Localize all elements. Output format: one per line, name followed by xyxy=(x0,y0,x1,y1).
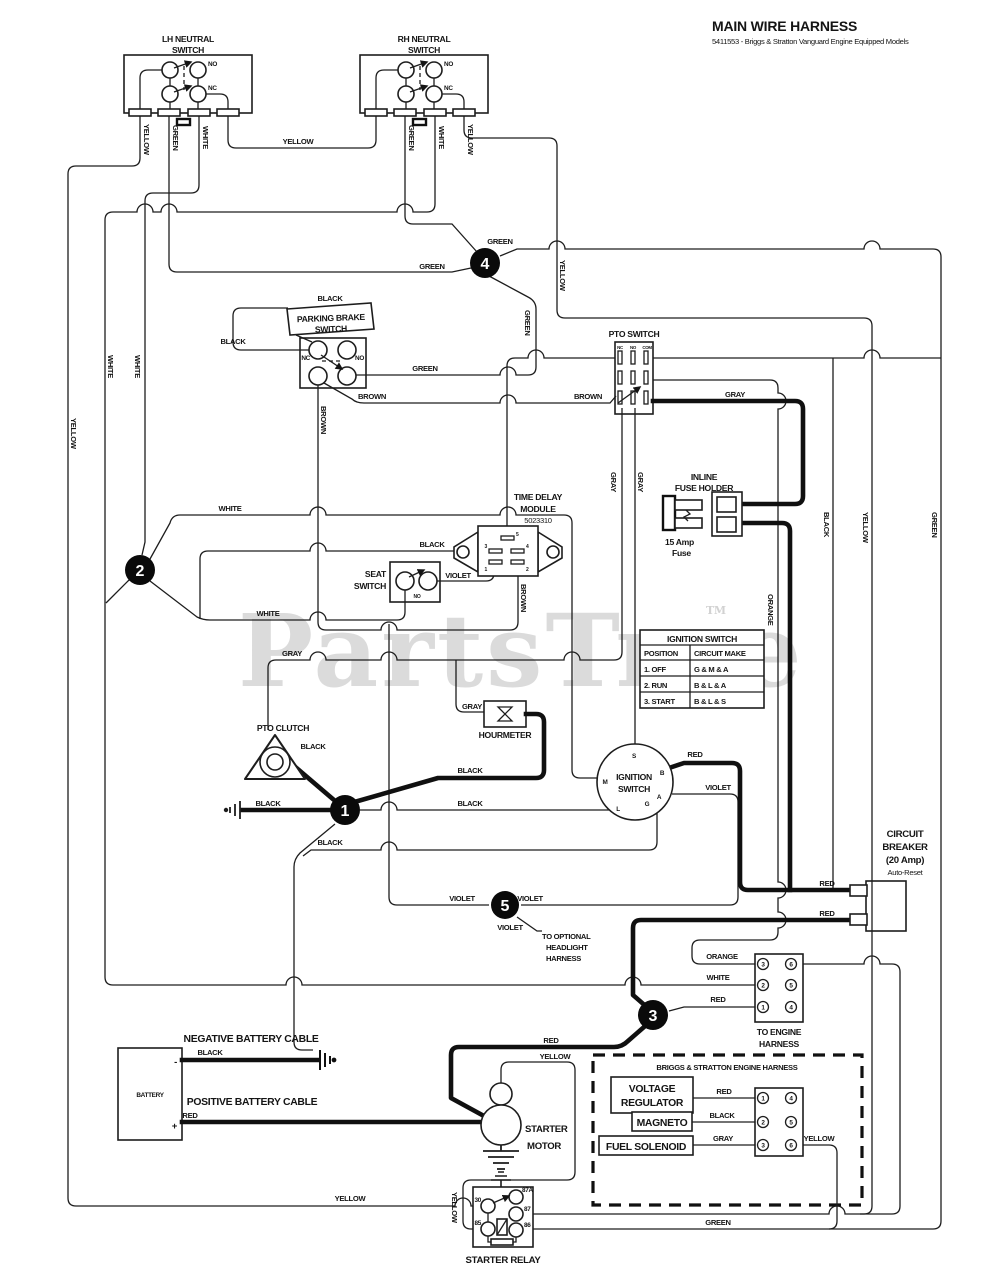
wire-label-green: GREEN xyxy=(407,125,416,151)
wire-label-green: GREEN xyxy=(705,1218,731,1227)
seat-switch-title: SEAT xyxy=(365,569,387,579)
wire-label-yellow: YELLOW xyxy=(540,1052,572,1061)
headlight-harness-label1: TO OPTIONAL xyxy=(542,932,591,941)
wire-black-ground xyxy=(294,824,335,1050)
junction-marker-5: 5 xyxy=(491,891,519,919)
wire-label-brown: BROWN xyxy=(519,584,528,612)
wire-label-brown: BROWN xyxy=(319,406,328,434)
wire-green-lh xyxy=(169,116,471,272)
starter-motor-label1: STARTER xyxy=(525,1124,568,1135)
clutch-ground-icon xyxy=(225,801,240,819)
relay-87a: 87A xyxy=(522,1187,534,1194)
time-delay-module: 5 3 4 1 2 xyxy=(454,526,562,576)
table-row-make: B & L & A xyxy=(694,681,727,690)
wire-label-red: RED xyxy=(710,995,726,1004)
junction-marker-3: 3 xyxy=(638,1000,668,1030)
wire-label-black: BLACK xyxy=(197,1048,223,1057)
parking-brake-title2: SWITCH xyxy=(315,323,348,334)
rh-neutral-switch-title2: SWITCH xyxy=(408,45,440,55)
wire-label-yellow: YELLOW xyxy=(466,124,475,156)
fuse-holder-title: INLINE xyxy=(691,472,718,482)
wire-label-red: RED xyxy=(819,909,835,918)
wire-label-black: BLACK xyxy=(822,512,831,538)
brake-no-label: NO xyxy=(355,355,364,362)
wire-label-gray: GRAY xyxy=(609,472,618,492)
pto-com-label: COM xyxy=(642,345,652,350)
relay-30: 30 xyxy=(474,1197,481,1204)
ignition-terminal-g: G xyxy=(645,801,650,808)
engine-harness-label1: TO ENGINE xyxy=(757,1027,802,1037)
wire-label-white: WHITE xyxy=(257,609,280,618)
wire-white-lh xyxy=(142,116,199,555)
relay-85: 85 xyxy=(474,1220,481,1227)
wire-label-black: BLACK xyxy=(419,540,445,549)
starter-relay-box xyxy=(473,1187,533,1247)
battery-neg-terminal: - xyxy=(174,1057,177,1068)
fuel-solenoid-label: FUEL SOLENOID xyxy=(606,1142,687,1153)
wire-label-brown: BROWN xyxy=(358,392,386,401)
fuse-label: Fuse xyxy=(672,548,691,558)
svg-text:2: 2 xyxy=(136,563,145,580)
headlight-harness-label2: HEADLIGHT xyxy=(546,943,588,952)
voltage-regulator-label2: REGULATOR xyxy=(621,1098,684,1109)
wire-label-red: RED xyxy=(543,1036,559,1045)
wire-red-ignition-b-breaker xyxy=(666,763,850,890)
rh-no-label: NO xyxy=(444,61,453,68)
table-row-position: 2. RUN xyxy=(644,681,667,690)
ignition-table-col2: CIRCUIT MAKE xyxy=(694,649,746,658)
wire-label-red: RED xyxy=(182,1111,198,1120)
table-row-make: B & L & S xyxy=(694,697,726,706)
wire-pto-right xyxy=(653,350,941,358)
wire-label-white: WHITE xyxy=(201,126,210,149)
wire-label-yellow: YELLOW xyxy=(861,512,870,544)
fuse-holder-title2: FUSE HOLDER xyxy=(675,483,734,493)
wire-engine-pin6 xyxy=(803,956,900,1214)
page-subtitle: 5411553 - Briggs & Stratton Vanguard Eng… xyxy=(712,37,909,46)
ignition-table-col1: POSITION xyxy=(644,649,678,658)
wire-label-violet: VIOLET xyxy=(705,783,731,792)
wire-label-yellow: YELLOW xyxy=(335,1194,367,1203)
wire-label-black: BLACK xyxy=(709,1111,735,1120)
ignition-switch: S M B A L G IGNITION SWITCH xyxy=(597,744,673,820)
lh-nc-label: NC xyxy=(208,85,217,92)
wire-label-white: WHITE xyxy=(133,355,142,378)
table-row-make: G & M & A xyxy=(694,665,729,674)
page-title: MAIN WIRE HARNESS xyxy=(712,18,857,34)
wire-label-black: BLACK xyxy=(317,838,343,847)
wire-label-white: WHITE xyxy=(219,504,242,513)
wire-label-black: BLACK xyxy=(317,294,343,303)
svg-text:3: 3 xyxy=(649,1008,658,1025)
circuit-breaker-reset: Auto-Reset xyxy=(888,868,924,877)
wire-label-gray: GRAY xyxy=(636,472,645,492)
wire-label-green: GREEN xyxy=(487,237,513,246)
lh-no-label: NO xyxy=(208,61,217,68)
svg-text:4: 4 xyxy=(481,256,490,273)
pto-switch-title: PTO SWITCH xyxy=(609,329,660,339)
wire-label-black: BLACK xyxy=(220,337,246,346)
wire-white-stub xyxy=(106,580,129,603)
wire-green-right-trunk xyxy=(500,241,941,1229)
title-block: MAIN WIRE HARNESS 5411553 - Briggs & Str… xyxy=(712,18,909,46)
positive-cable-label: POSITIVE BATTERY CABLE xyxy=(187,1097,318,1108)
wiring-diagram: PartsTree TM MAIN WIRE HARNESS 5411553 -… xyxy=(0,0,989,1280)
wire-label-white: WHITE xyxy=(106,355,115,378)
wire-label-gray: GRAY xyxy=(725,390,745,399)
ignition-terminal-a: A xyxy=(657,794,662,801)
circuit-breaker-title: CIRCUIT xyxy=(887,829,924,840)
wire-label-green: GREEN xyxy=(930,512,939,538)
battery-pos-terminal: + xyxy=(172,1121,178,1132)
starter-relay-title: STARTER RELAY xyxy=(466,1255,542,1266)
wiring-diagram-page: PartsTree TM MAIN WIRE HARNESS 5411553 -… xyxy=(0,0,989,1280)
wire-label-green: GREEN xyxy=(419,262,445,271)
wire-black-ignition-l xyxy=(360,802,609,810)
ignition-table-header: IGNITION SWITCH xyxy=(667,634,737,644)
wire-label-yellow: YELLOW xyxy=(283,137,315,146)
engine-harness-label2: HARNESS xyxy=(759,1039,799,1049)
relay-87: 87 xyxy=(524,1206,531,1213)
wire-label-violet: VIOLET xyxy=(449,894,475,903)
wire-label-green: GREEN xyxy=(171,125,180,151)
wire-label-gray: GRAY xyxy=(713,1134,733,1143)
headlight-harness-label3: HARNESS xyxy=(546,954,581,963)
watermark-tm: TM xyxy=(706,604,726,617)
circuit-breaker-title2: BREAKER xyxy=(882,842,928,853)
wire-label-violet: VIOLET xyxy=(497,923,523,932)
wire-label-red: RED xyxy=(687,750,703,759)
wire-label-black: BLACK xyxy=(457,799,483,808)
lh-neutral-switch-title: LH NEUTRAL xyxy=(162,34,214,44)
battery-label: BATTERY xyxy=(136,1092,164,1099)
ignition-terminal-l: L xyxy=(616,806,620,813)
starter-motor-label2: MOTOR xyxy=(527,1141,561,1152)
lh-neutral-switch-title2: SWITCH xyxy=(172,45,204,55)
wire-label-yellow: YELLOW xyxy=(804,1134,836,1143)
negative-cable-label: NEGATIVE BATTERY CABLE xyxy=(183,1034,318,1045)
magneto-label: MAGNETO xyxy=(637,1118,688,1129)
wire-label-orange: ORANGE xyxy=(766,594,775,626)
seat-switch-title2: SWITCH xyxy=(354,581,386,591)
pto-clutch xyxy=(245,735,305,779)
battery-ground-icon xyxy=(320,1051,335,1069)
inline-fuse-holder xyxy=(663,492,742,536)
pto-switch-box xyxy=(615,342,653,414)
wire-label-red: RED xyxy=(819,879,835,888)
wire-label-yellow: YELLOW xyxy=(450,1192,459,1224)
rh-neutral-switch-title: RH NEUTRAL xyxy=(398,34,451,44)
rh-nc-label: NC xyxy=(444,85,453,92)
wire-label-green: GREEN xyxy=(523,310,532,336)
fuse-amp-label: 15 Amp xyxy=(665,537,694,547)
wire-label-white: WHITE xyxy=(437,126,446,149)
ignition-terminal-b: B xyxy=(660,770,665,777)
time-delay-title: TIME DELAY xyxy=(514,492,563,502)
wire-label-orange: ORANGE xyxy=(706,952,738,961)
pto-clutch-title: PTO CLUTCH xyxy=(257,723,309,733)
time-delay-part: 5023310 xyxy=(524,516,552,525)
time-delay-title2: MODULE xyxy=(520,504,556,514)
bs-harness-title: BRIGGS & STRATTON ENGINE HARNESS xyxy=(656,1063,797,1072)
wire-label-gray: GRAY xyxy=(282,649,302,658)
wire-label-violet: VIOLET xyxy=(517,894,543,903)
svg-text:5: 5 xyxy=(501,898,510,915)
wire-label-green: GREEN xyxy=(412,364,438,373)
wire-label-black: BLACK xyxy=(255,799,281,808)
junction-marker-1: 1 xyxy=(330,795,360,825)
wire-label-gray: GRAY xyxy=(462,702,482,711)
wire-label-black: BLACK xyxy=(457,766,483,775)
starter-motor xyxy=(481,1083,521,1169)
junction-marker-4: 4 xyxy=(470,248,500,278)
junction-marker-2: 2 xyxy=(125,555,155,585)
wire-red-engine-pin1 xyxy=(669,1007,755,1011)
wire-label-yellow: YELLOW xyxy=(69,418,78,450)
svg-text:1: 1 xyxy=(341,803,350,820)
wire-label-brown: BROWN xyxy=(574,392,602,401)
wire-label-violet: VIOLET xyxy=(445,571,471,580)
circuit-breaker xyxy=(850,885,867,925)
wire-label-white: WHITE xyxy=(707,973,730,982)
table-row-position: 1. OFF xyxy=(644,665,666,674)
ignition-switch-label2: SWITCH xyxy=(618,784,650,794)
wire-label-yellow: YELLOW xyxy=(558,260,567,292)
voltage-regulator-label1: VOLTAGE xyxy=(629,1084,676,1095)
table-row-position: 3. START xyxy=(644,697,675,706)
ignition-switch-label1: IGNITION xyxy=(616,772,652,782)
relay-86: 86 xyxy=(524,1222,531,1229)
wire-label-red: RED xyxy=(716,1087,732,1096)
pto-no-label: NO xyxy=(630,345,637,350)
wire-label-black: BLACK xyxy=(300,742,326,751)
circuit-breaker-amp: (20 Amp) xyxy=(886,855,924,866)
wire-label-yellow: YELLOW xyxy=(142,124,151,156)
ignition-terminal-m: M xyxy=(602,779,607,786)
wire-yellow-bs-pin6 xyxy=(803,1145,837,1229)
brake-nc-label: NC xyxy=(301,355,310,362)
hourmeter-title: HOURMETER xyxy=(479,730,533,740)
seat-no-label: NO xyxy=(414,594,421,600)
